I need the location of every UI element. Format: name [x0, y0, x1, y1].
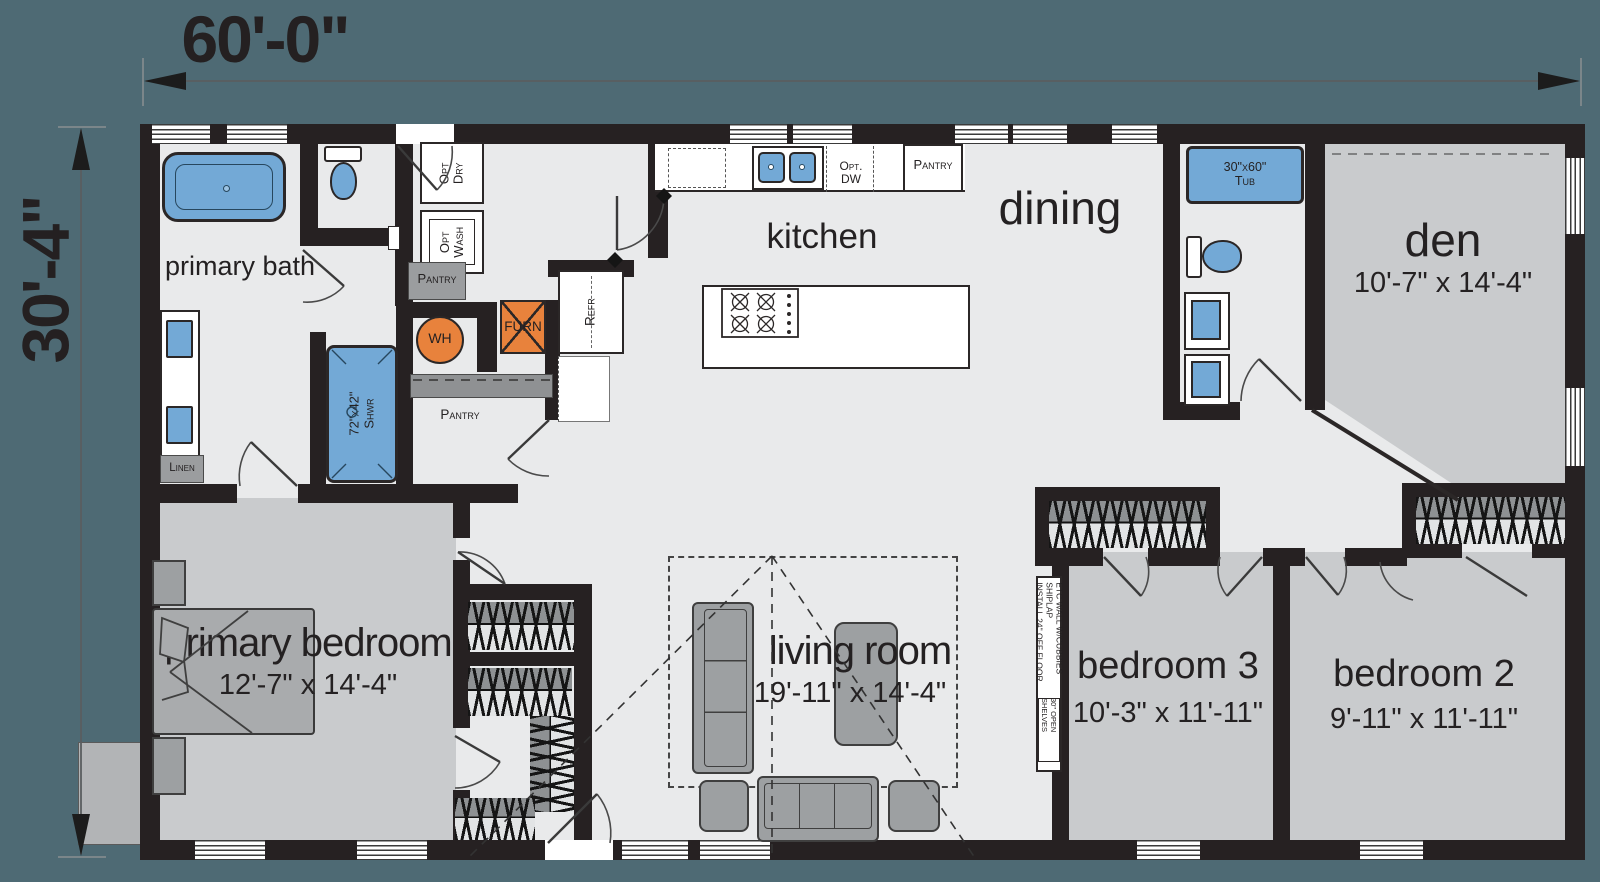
door-opening-entry [545, 840, 613, 860]
kitchen-island [702, 285, 970, 369]
window [730, 124, 787, 144]
wall [453, 498, 470, 538]
sofa-icon [757, 776, 879, 842]
dimension-width: 60'-0" [130, 0, 400, 78]
wall [298, 484, 518, 503]
furnace-label: FURN [498, 320, 548, 334]
primary-bedroom-size: 12'-7" x 14'-4" [158, 670, 458, 701]
wall [574, 600, 592, 840]
walkin-pantry-label: Pantry [410, 408, 510, 422]
wall [1163, 144, 1180, 420]
window [955, 124, 1008, 144]
closet-hangers-bedroom3 [1049, 501, 1206, 548]
shower-icon: 72"x42"Shwr [326, 345, 398, 483]
tub2-icon: 30"x60"Tub [1186, 146, 1304, 204]
wall [140, 484, 237, 503]
floor-bedroom-2 [1288, 552, 1565, 840]
opt-dishwasher-box: Opt.DW [826, 146, 874, 192]
living-room-label: living room [710, 630, 1010, 672]
kitchen-sink-icon [752, 146, 824, 190]
opt-cabinet-dashed [668, 148, 726, 188]
door-opening-back [396, 124, 454, 144]
cabinet-box [558, 356, 610, 422]
bedroom2-label: bedroom 2 [1299, 654, 1549, 694]
pantry-counter [410, 374, 553, 398]
wall [1532, 544, 1572, 558]
sink-icon [166, 320, 193, 358]
floor-bedroom-3 [1067, 552, 1273, 840]
window [793, 124, 852, 144]
side-table-icon [699, 780, 749, 832]
wall [453, 652, 592, 666]
nightstand [152, 560, 186, 606]
closet-hangers-primary-b [468, 668, 572, 716]
wall-closet3-top [1035, 487, 1220, 501]
wall [310, 332, 326, 486]
refrigerator-icon: Refr [558, 270, 624, 354]
closet-hangers-primary-a [468, 602, 574, 650]
window [1360, 840, 1423, 860]
window [195, 840, 265, 860]
wall [477, 302, 497, 372]
wall [1035, 487, 1049, 552]
bedroom2-size: 9'-11" x 11'-11" [1299, 704, 1549, 735]
toilet2-bowl-icon [1202, 240, 1242, 273]
bedroom3-size: 10'-3" x 11'-11" [1043, 698, 1293, 729]
pantry-cabinet-label: Pantry [408, 272, 466, 286]
wall [1345, 548, 1407, 566]
den-label: den [1343, 216, 1543, 265]
window [1565, 388, 1585, 466]
window [700, 840, 770, 860]
linen-label: Linen [160, 462, 204, 474]
wall [300, 144, 318, 236]
primary-bedroom-label: primary bedroom [158, 622, 458, 664]
dimension-height: 30'-4" [4, 150, 88, 410]
wall-exterior-top [140, 124, 1585, 144]
window [357, 840, 427, 860]
living-room-size: 19'-11" x 14'-4" [700, 678, 1000, 709]
toilet-bowl-icon [330, 162, 357, 200]
side-table-icon [888, 780, 940, 832]
window [1112, 124, 1157, 144]
window [622, 840, 688, 860]
wall [1402, 544, 1462, 558]
kitchen-pantry-label: Pantry [903, 158, 963, 172]
window [1565, 158, 1585, 234]
wall-closet2-top [1402, 483, 1572, 497]
bathtub-icon [162, 152, 286, 222]
opt-dryer-box: OptDry [420, 142, 484, 204]
closet-hangers-bedroom2 [1416, 497, 1565, 544]
wall [1206, 487, 1220, 552]
toilet2-tank-icon [1186, 236, 1202, 278]
toilet-tank-icon [324, 146, 362, 162]
window [227, 124, 287, 144]
wall [1273, 552, 1290, 840]
water-heater-label: WH [416, 331, 464, 346]
wall [453, 584, 592, 600]
window [1137, 840, 1200, 860]
closet-hangers-primary-d [455, 798, 535, 840]
wall [1305, 144, 1325, 410]
electrical-panel-icon [388, 226, 400, 250]
window [152, 124, 210, 144]
window [1013, 124, 1067, 144]
primary-bath-label: primary bath [120, 252, 360, 281]
wall [1263, 548, 1305, 566]
den-size: 10'-7" x 14'-4" [1328, 268, 1558, 299]
dining-label: dining [960, 184, 1160, 233]
vanity2-sink-box [1184, 354, 1230, 406]
vanity2-sink-box [1184, 292, 1230, 350]
wall [300, 228, 398, 246]
kitchen-label: kitchen [722, 218, 922, 255]
floor-plan: Linen 72"x42"Shwr OptDry OptWash Pantry … [0, 0, 1600, 882]
closet-hangers-primary-c [530, 716, 574, 812]
bedroom3-label: bedroom 3 [1043, 646, 1293, 686]
nightstand [152, 737, 186, 795]
sink-icon [166, 406, 193, 444]
